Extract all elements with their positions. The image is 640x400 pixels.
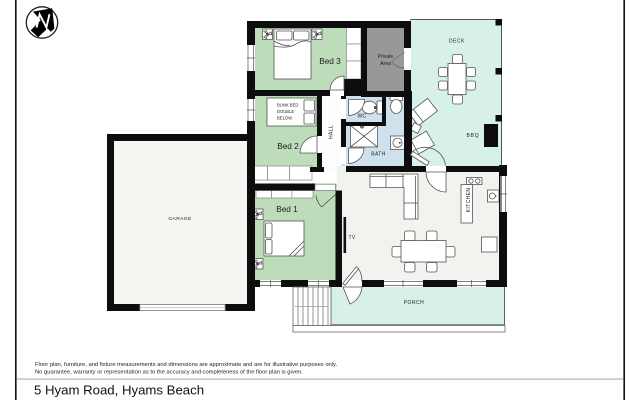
svg-text:PORCH: PORCH (404, 300, 425, 306)
svg-text:No guarantee, warranty or repr: No guarantee, warranty or representation… (35, 369, 303, 375)
svg-text:Area: Area (380, 61, 391, 67)
svg-text:TV: TV (349, 235, 356, 241)
svg-text:5 Hyam Road, Hyams Beach: 5 Hyam Road, Hyams Beach (34, 383, 204, 398)
svg-text:BBQ: BBQ (467, 133, 480, 139)
svg-text:Floor plan, furniture, and fix: Floor plan, furniture, and fixture measu… (35, 362, 338, 368)
svg-text:BUNK BED: BUNK BED (277, 103, 298, 108)
svg-text:WC: WC (358, 114, 367, 120)
svg-text:BELOW: BELOW (277, 116, 292, 121)
svg-text:Private: Private (378, 54, 394, 60)
svg-text:DECK: DECK (449, 38, 465, 44)
svg-text:KITCHEN: KITCHEN (466, 188, 472, 213)
svg-text:HALL: HALL (329, 125, 335, 139)
svg-text:DOUBLE: DOUBLE (277, 109, 294, 114)
svg-text:Bed 2: Bed 2 (277, 142, 299, 151)
svg-text:GARAGE: GARAGE (168, 216, 192, 222)
svg-text:Bed 3: Bed 3 (319, 57, 341, 66)
svg-text:BATH: BATH (371, 152, 386, 158)
svg-text:Bed 1: Bed 1 (276, 205, 298, 214)
